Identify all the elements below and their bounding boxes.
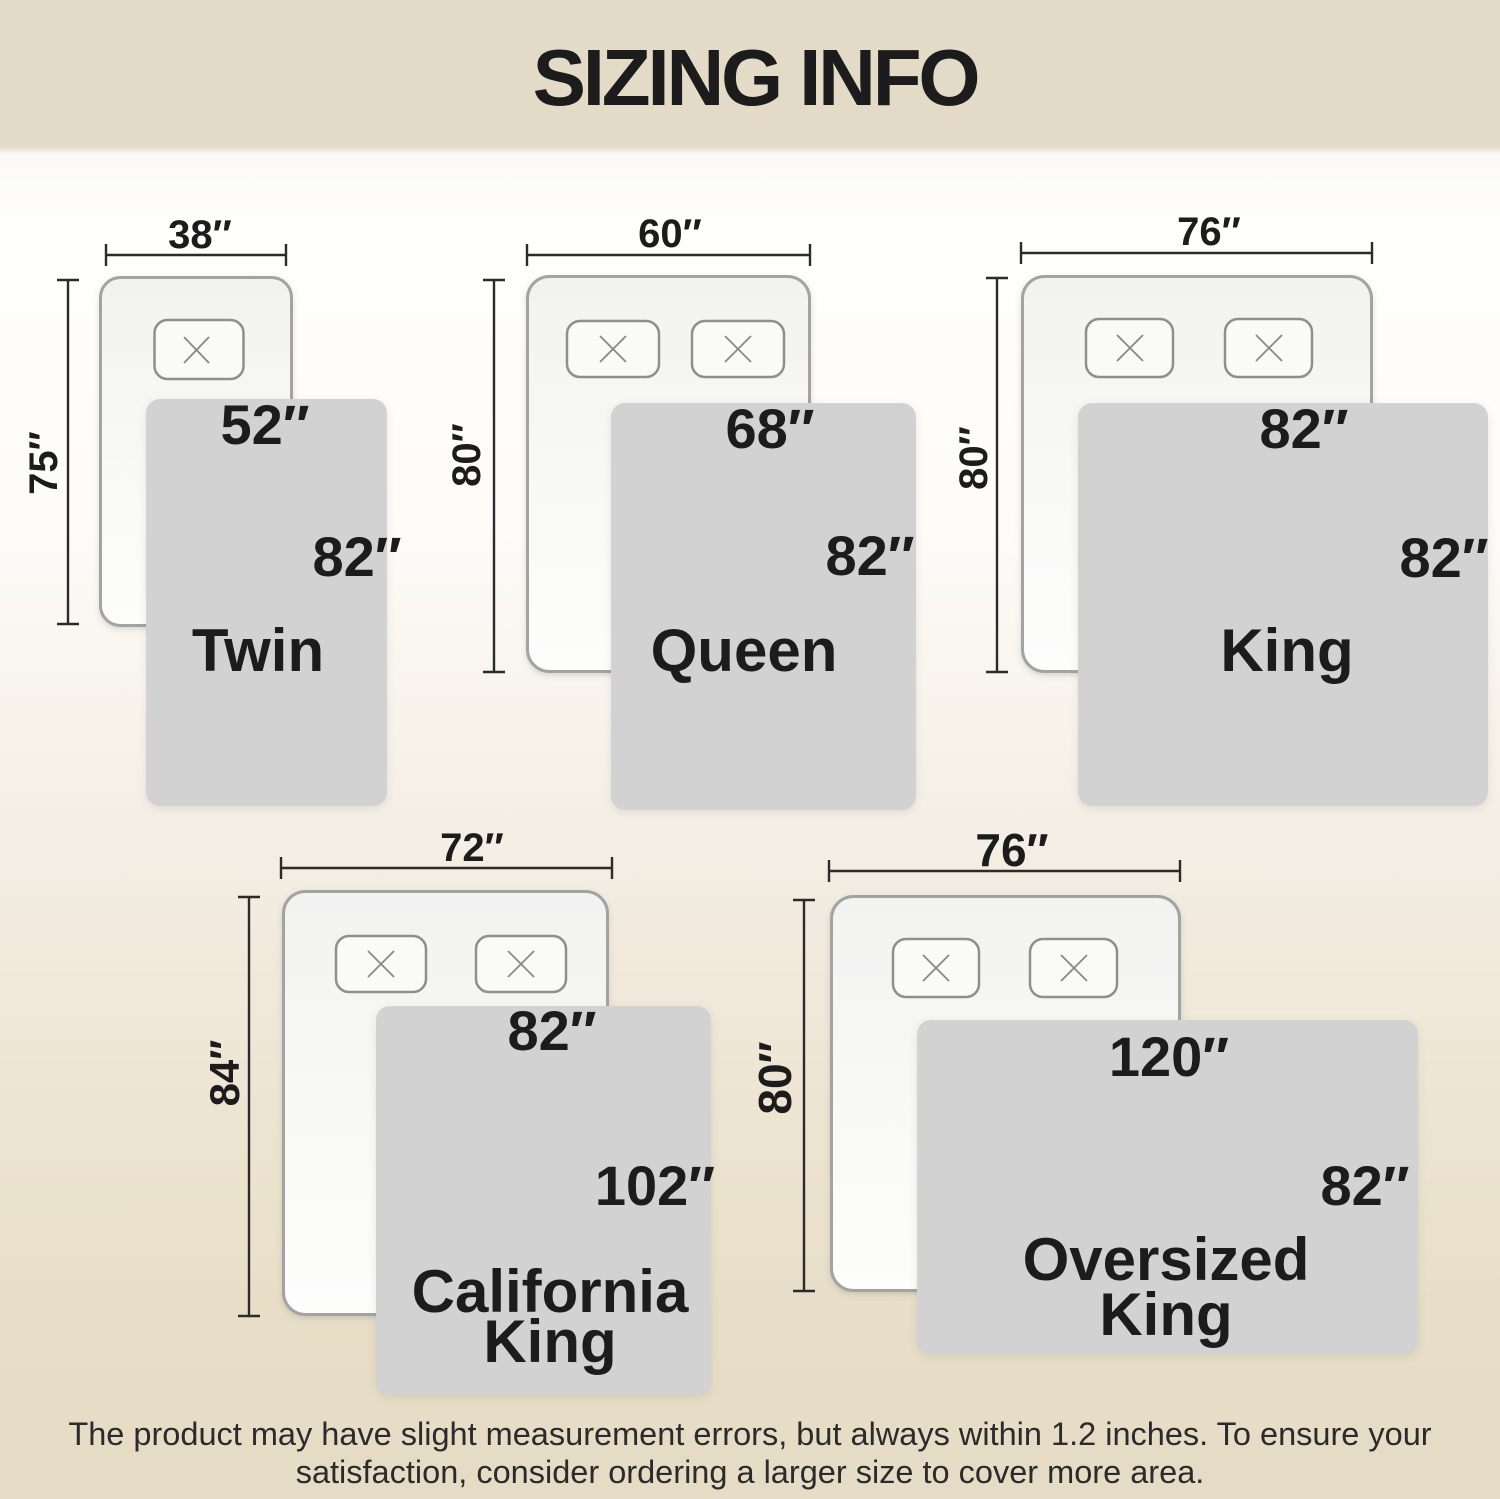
- svg-text:The product may have slight me: The product may have slight measurement …: [68, 1416, 1431, 1452]
- svg-text:82″: 82″: [825, 524, 914, 587]
- svg-text:72″: 72″: [440, 826, 504, 870]
- svg-text:60″: 60″: [638, 212, 702, 256]
- svg-text:82″: 82″: [507, 999, 596, 1062]
- svg-text:75″: 75″: [22, 431, 66, 495]
- svg-text:52″: 52″: [220, 393, 309, 456]
- svg-text:120″: 120″: [1109, 1025, 1229, 1088]
- svg-text:80″: 80″: [952, 426, 996, 490]
- svg-text:80″: 80″: [445, 423, 489, 487]
- svg-text:Queen: Queen: [651, 617, 838, 684]
- svg-text:102″: 102″: [595, 1154, 715, 1217]
- svg-text:84″: 84″: [201, 1040, 248, 1107]
- svg-text:King: King: [483, 1308, 616, 1375]
- svg-text:King: King: [1099, 1281, 1232, 1348]
- svg-text:76″: 76″: [975, 824, 1048, 876]
- svg-text:satisfaction, consider orderin: satisfaction, consider ordering a larger…: [296, 1454, 1205, 1490]
- svg-text:82″: 82″: [1399, 526, 1488, 589]
- svg-text:80″: 80″: [749, 1041, 801, 1114]
- svg-text:38″: 38″: [168, 213, 232, 257]
- svg-text:68″: 68″: [725, 397, 814, 460]
- svg-text:King: King: [1220, 617, 1353, 684]
- svg-text:76″: 76″: [1177, 210, 1241, 254]
- svg-text:82″: 82″: [1320, 1154, 1409, 1217]
- svg-text:Twin: Twin: [192, 617, 324, 684]
- svg-text:82″: 82″: [312, 525, 401, 588]
- svg-text:SIZING INFO: SIZING INFO: [533, 33, 978, 122]
- svg-text:82″: 82″: [1259, 397, 1348, 460]
